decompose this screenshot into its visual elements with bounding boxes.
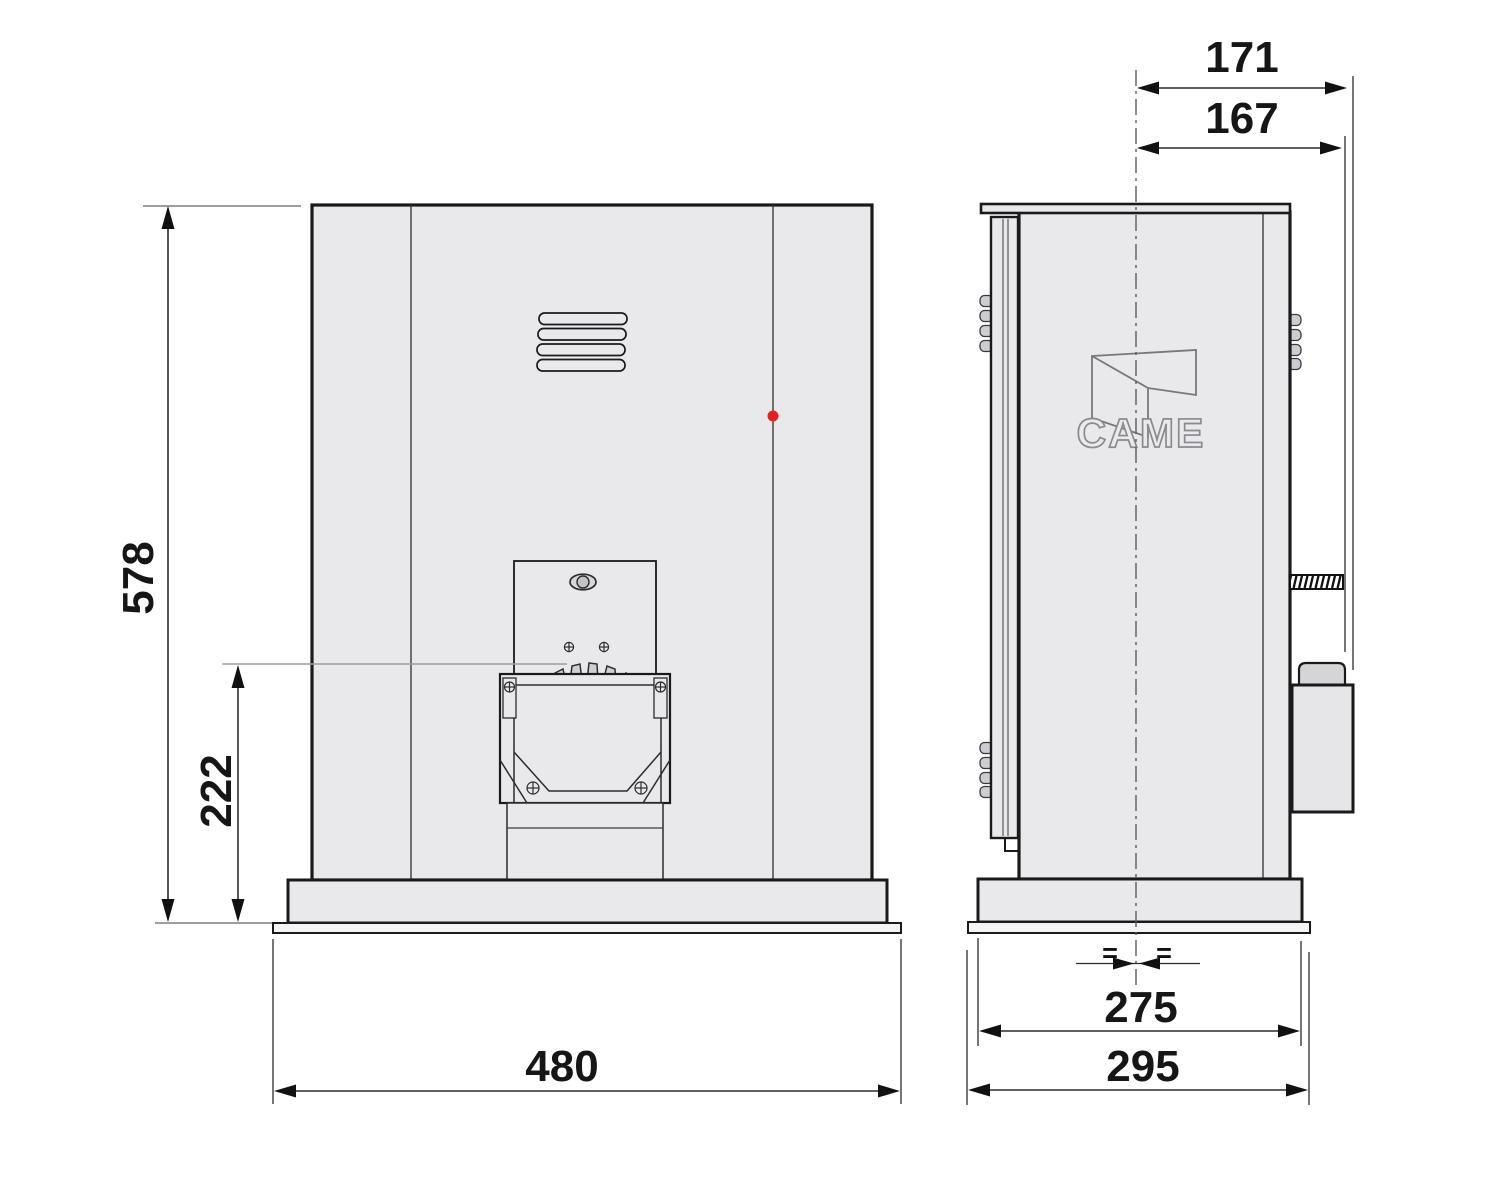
side-foundation-plate: [968, 922, 1310, 933]
front-door-strip: [991, 217, 1018, 838]
side-cabinet-body: [1019, 212, 1290, 879]
limit-box-cap: [1299, 663, 1345, 685]
technical-drawing-page: CAME 578 222 480: [0, 0, 1500, 1185]
dimension-label-275: 275: [1104, 983, 1177, 1032]
dimension-label-222: 222: [192, 754, 241, 827]
dimension-label-480: 480: [525, 1042, 598, 1091]
front-view: [273, 205, 901, 933]
threaded-shaft: [1290, 575, 1343, 589]
dimension-label-167: 167: [1205, 94, 1278, 143]
red-indicator-dot: [768, 411, 779, 422]
bracket-column: [507, 803, 663, 880]
came-logo-text: CAME: [1077, 410, 1206, 456]
side-base-plate: [978, 879, 1302, 922]
dimension-label-295: 295: [1106, 1042, 1179, 1091]
dimension-label-578: 578: [114, 541, 163, 614]
gear-bracket: [500, 674, 670, 803]
limit-switch-box: [1292, 685, 1353, 812]
lock-icon: [570, 574, 596, 590]
front-foundation-plate: [273, 923, 901, 933]
dimensional-drawing: CAME 578 222 480: [0, 0, 1500, 1185]
dimension-label-171: 171: [1205, 33, 1278, 82]
front-base-plate: [288, 880, 887, 923]
